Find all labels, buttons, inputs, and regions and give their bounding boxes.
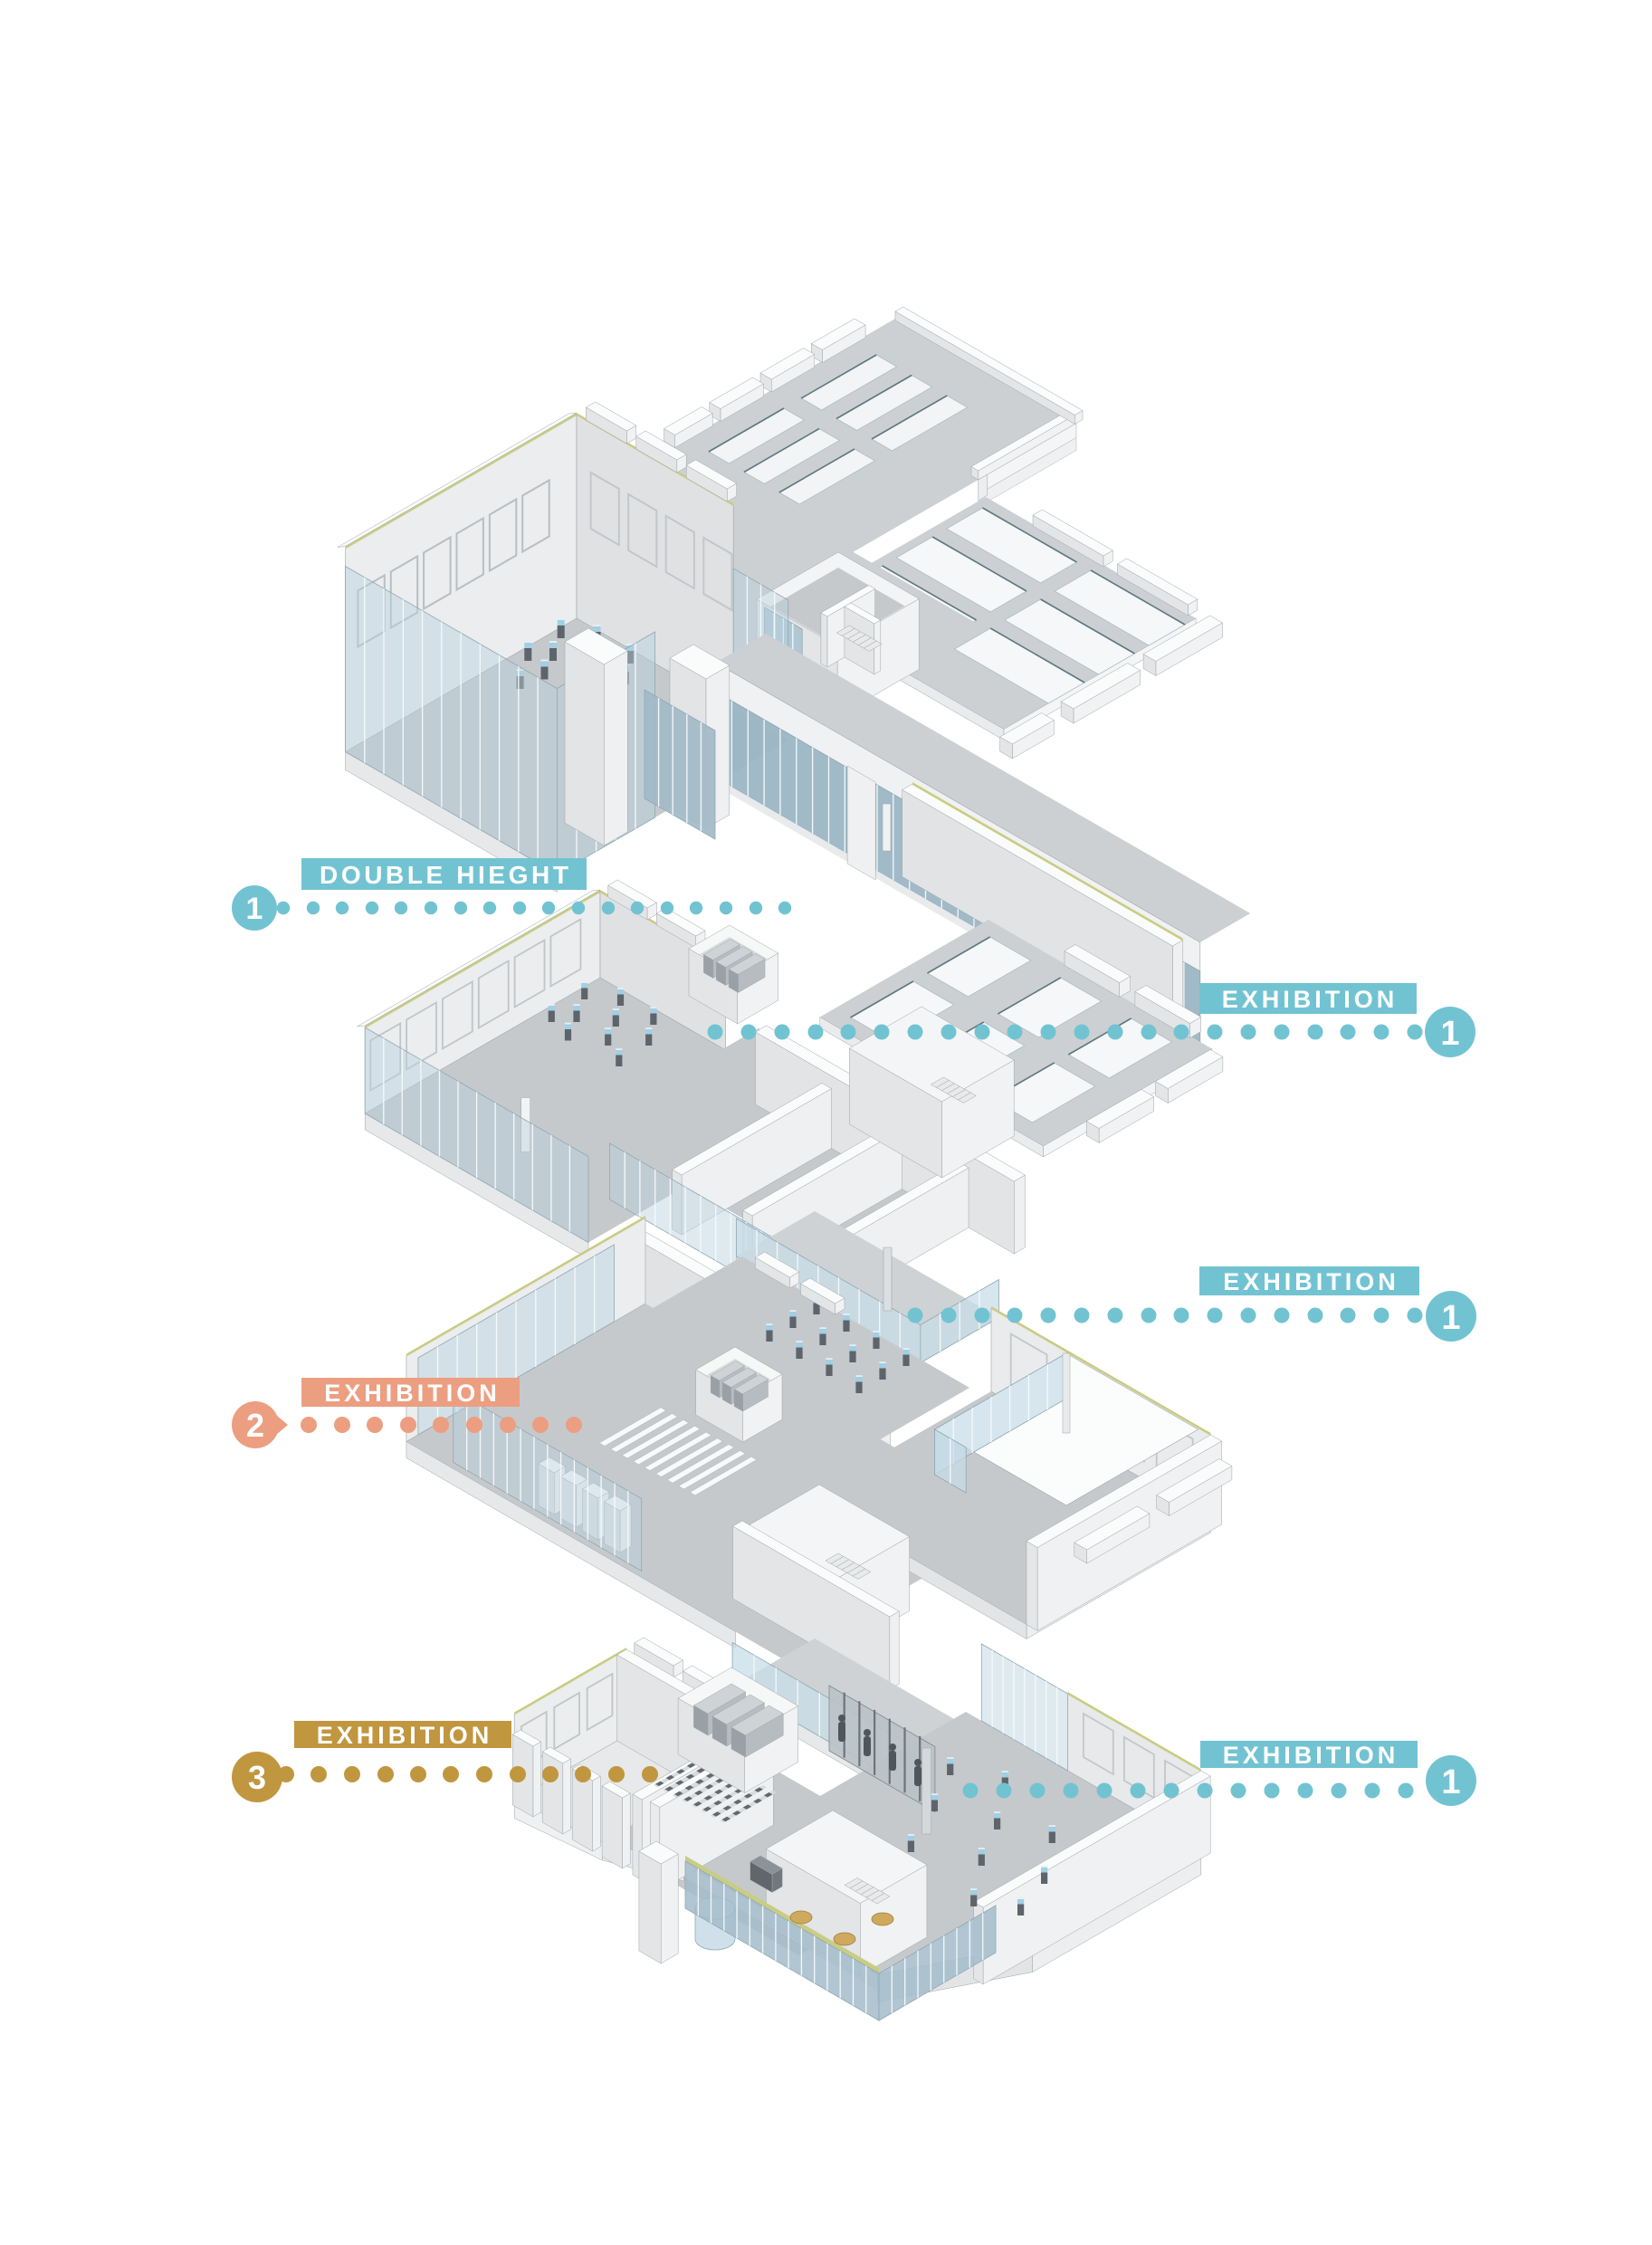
svg-text:EXHIBITION: EXHIBITION: [317, 1722, 493, 1749]
svg-text:2: 2: [246, 1407, 264, 1444]
svg-text:1: 1: [1440, 1015, 1459, 1053]
svg-text:1: 1: [1441, 1299, 1460, 1337]
svg-text:EXHIBITION: EXHIBITION: [1223, 1268, 1399, 1295]
svg-text:EXHIBITION: EXHIBITION: [1223, 1742, 1399, 1769]
svg-text:EXHIBITION: EXHIBITION: [1222, 986, 1399, 1013]
svg-text:EXHIBITION: EXHIBITION: [324, 1380, 501, 1407]
svg-text:1: 1: [1441, 1763, 1460, 1801]
svg-text:3: 3: [248, 1759, 266, 1796]
svg-text:DOUBLE HIEGHT: DOUBLE HIEGHT: [320, 861, 572, 889]
svg-text:1: 1: [246, 892, 263, 926]
